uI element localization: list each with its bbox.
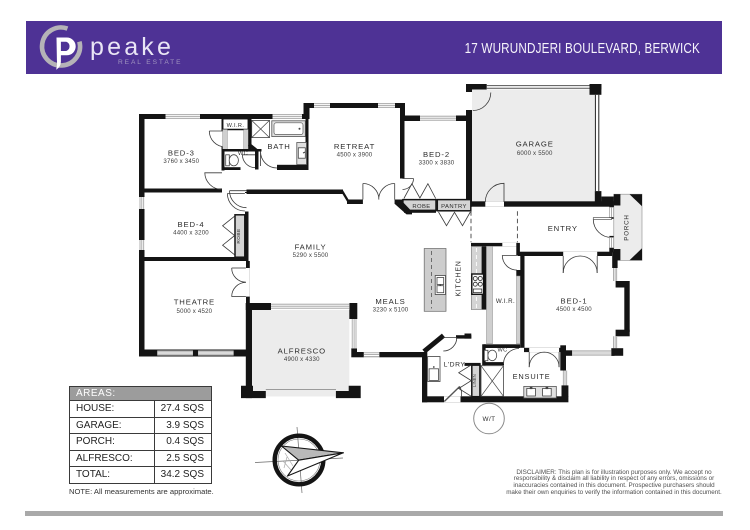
svg-text:MEALS: MEALS <box>375 297 405 306</box>
svg-text:W.I.R.: W.I.R. <box>496 298 515 305</box>
svg-text:WC: WC <box>497 348 507 354</box>
svg-text:ALFRESCO: ALFRESCO <box>278 347 326 356</box>
svg-text:BED-4: BED-4 <box>178 220 205 229</box>
svg-text:3300 x 3830: 3300 x 3830 <box>419 160 455 167</box>
svg-text:GARAGE: GARAGE <box>516 140 554 149</box>
svg-text:W.I.R.: W.I.R. <box>227 123 245 129</box>
svg-text:W/T: W/T <box>483 416 496 423</box>
svg-text:4500 x 3900: 4500 x 3900 <box>337 151 373 158</box>
svg-text:5290 x 5500: 5290 x 5500 <box>293 252 329 259</box>
svg-text:LINEN: LINEN <box>472 374 477 387</box>
svg-text:ROBE: ROBE <box>412 204 430 210</box>
svg-text:BED-3: BED-3 <box>168 149 195 158</box>
svg-text:6000 x 5500: 6000 x 5500 <box>517 150 553 157</box>
svg-text:5000 x 4520: 5000 x 4520 <box>177 308 213 315</box>
svg-text:ENSUITE: ENSUITE <box>513 372 551 381</box>
svg-text:RETREAT: RETREAT <box>334 142 375 151</box>
svg-text:ENTRY: ENTRY <box>548 224 578 233</box>
svg-text:THEATRE: THEATRE <box>174 298 215 307</box>
svg-text:BED-1: BED-1 <box>561 296 588 305</box>
svg-text:4400 x 3200: 4400 x 3200 <box>173 230 209 237</box>
svg-text:KITCHEN: KITCHEN <box>456 260 463 296</box>
svg-text:PORCH: PORCH <box>624 214 631 240</box>
svg-text:4500 x 4500: 4500 x 4500 <box>556 306 592 313</box>
svg-text:BED-2: BED-2 <box>423 150 450 159</box>
svg-text:PANTRY: PANTRY <box>441 204 467 210</box>
svg-text:L'DRY: L'DRY <box>444 362 466 369</box>
svg-text:3760 x 3450: 3760 x 3450 <box>163 158 199 165</box>
svg-text:FAMILY: FAMILY <box>295 242 327 251</box>
svg-text:ROBE: ROBE <box>236 228 242 243</box>
svg-text:BATH: BATH <box>267 142 290 151</box>
svg-text:WC: WC <box>238 151 248 157</box>
svg-text:4900 x 4330: 4900 x 4330 <box>284 356 320 363</box>
svg-text:3230 x 5100: 3230 x 5100 <box>373 306 409 313</box>
